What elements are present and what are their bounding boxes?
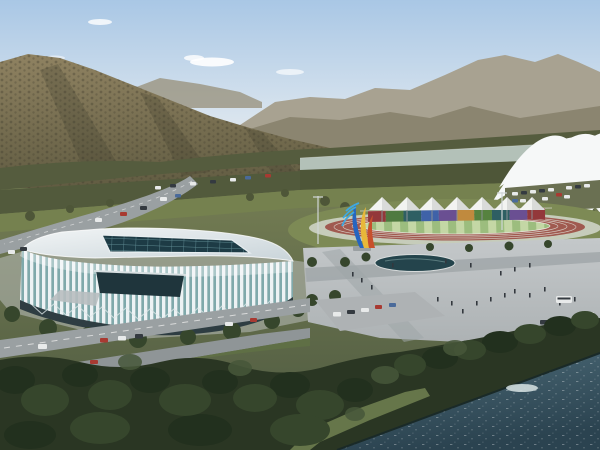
scene-canvas [0,0,600,450]
bus [556,296,572,303]
water-highlight [506,384,538,392]
rendered-scene [0,0,600,450]
